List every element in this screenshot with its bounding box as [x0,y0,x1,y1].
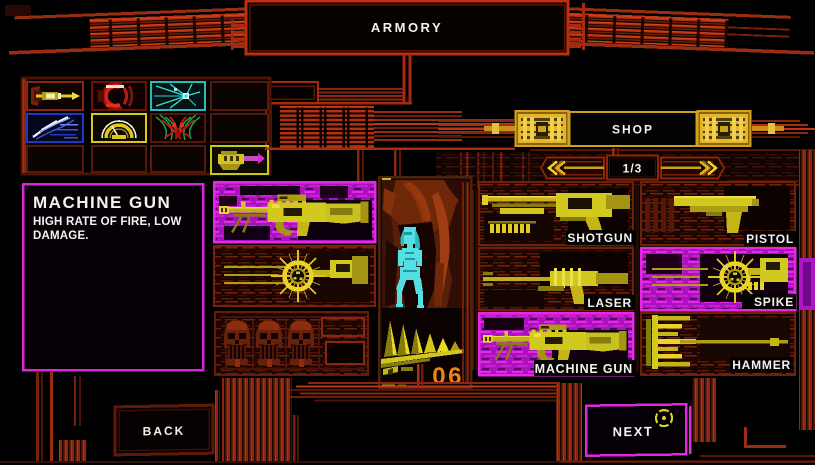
svg-text:SHOP: SHOP [612,123,654,137]
svg-text:BACK: BACK [143,424,186,439]
svg-text:MACHINE GUN: MACHINE GUN [33,193,171,212]
svg-text:SHOTGUN: SHOTGUN [567,231,633,245]
svg-text:1/3: 1/3 [623,162,643,176]
svg-text:DAMAGE.: DAMAGE. [33,230,89,242]
svg-text:ARMORY: ARMORY [371,20,443,35]
svg-text:NEXT: NEXT [613,424,654,440]
svg-text:PISTOL: PISTOL [746,232,794,246]
svg-text:HIGH RATE OF FIRE, LOW: HIGH RATE OF FIRE, LOW [33,216,182,228]
svg-text:HAMMER: HAMMER [732,358,791,372]
svg-text:SPIKE: SPIKE [754,295,794,309]
svg-text:MACHINE GUN: MACHINE GUN [535,362,633,376]
svg-text:LASER: LASER [587,296,632,310]
